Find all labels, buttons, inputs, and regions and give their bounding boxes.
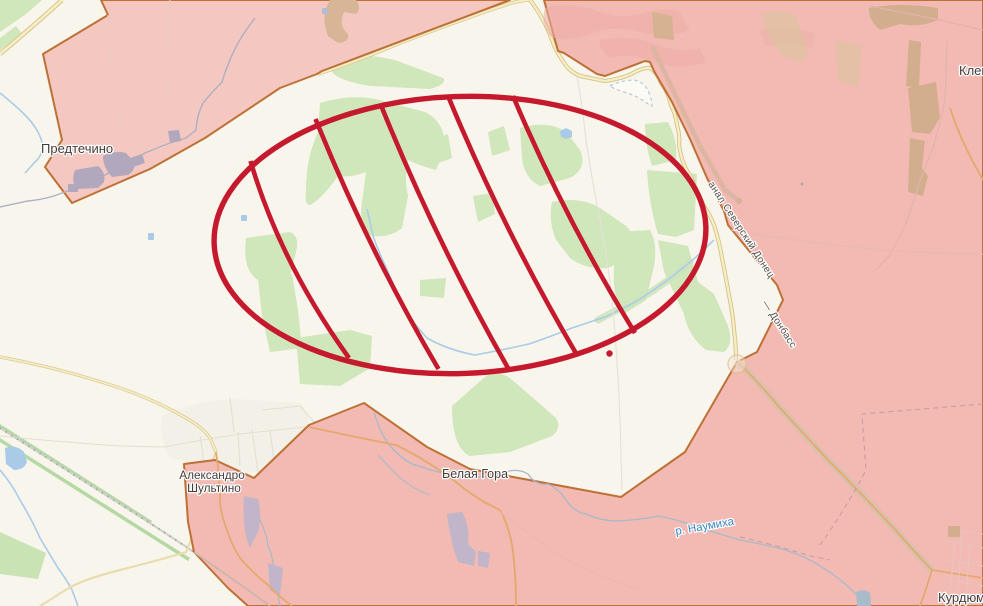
svg-text:Предтечино: Предтечино: [41, 141, 113, 156]
svg-text:Клещеевка: Клещеевка: [959, 63, 983, 78]
svg-text:Шультино: Шультино: [187, 481, 241, 495]
svg-text:Белая Гора: Белая Гора: [442, 467, 508, 481]
svg-text:Курдюмовка: Курдюмовка: [938, 590, 983, 605]
svg-text:Александро: Александро: [179, 468, 245, 482]
